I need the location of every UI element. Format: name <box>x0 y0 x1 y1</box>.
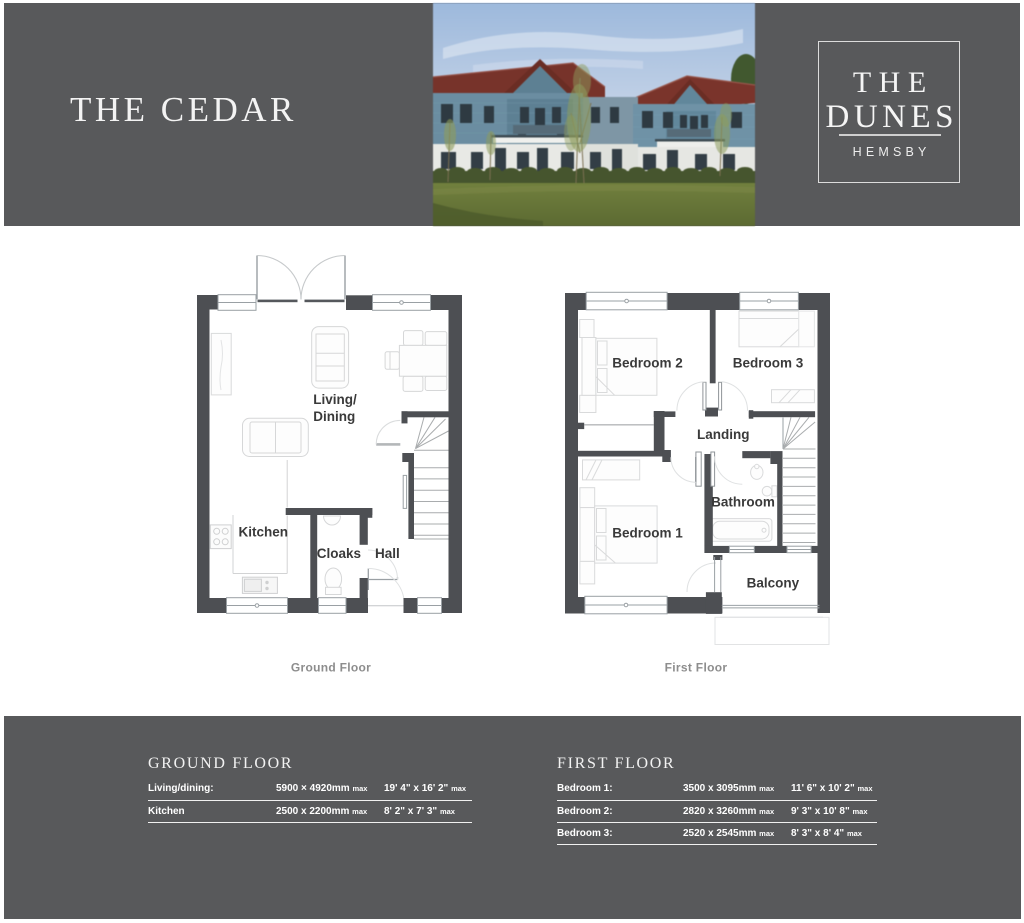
svg-text:Landing: Landing <box>697 427 750 442</box>
svg-text:Bedroom 2: Bedroom 2 <box>612 356 683 371</box>
svg-text:Hall: Hall <box>375 546 400 561</box>
svg-text:Kitchen: Kitchen <box>239 525 289 540</box>
svg-text:Bedroom 1: Bedroom 1 <box>612 525 683 540</box>
svg-text:First Floor: First Floor <box>665 661 728 675</box>
svg-text:Bathroom: Bathroom <box>711 495 775 510</box>
svg-text:Ground Floor: Ground Floor <box>291 661 371 675</box>
svg-text:Dining: Dining <box>313 409 355 424</box>
svg-text:Cloaks: Cloaks <box>317 546 361 561</box>
svg-text:Balcony: Balcony <box>747 575 800 590</box>
svg-text:Bedroom 3: Bedroom 3 <box>733 356 804 371</box>
svg-text:Living/: Living/ <box>313 392 357 407</box>
